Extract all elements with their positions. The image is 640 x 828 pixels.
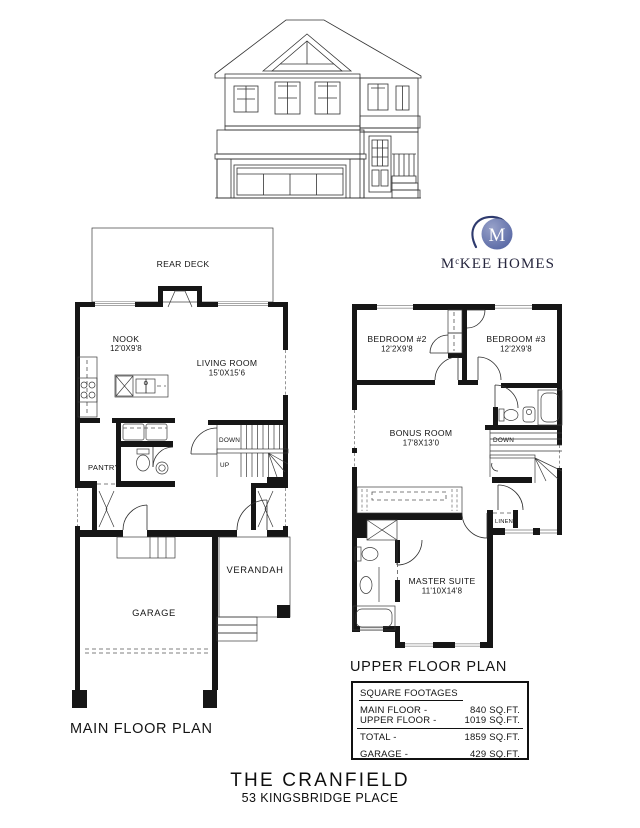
porch-railing [392,154,416,176]
main-floor-plan-title: MAIN FLOOR PLAN [70,721,213,737]
main-stairs [191,425,288,477]
main-bath-fixtures [495,385,562,425]
main-floor-walls [72,286,288,708]
garage-door-dashes [85,649,208,653]
house-elevation-drawing [212,8,426,200]
room-dims-bedroom2: 12'2X9'8 [381,345,413,354]
elevation-upper-storey [225,74,418,132]
closet-label-linen: LINEN [495,519,513,525]
kitchen-fixtures [78,357,168,417]
room-dims-bonus: 17'8X13'0 [403,439,440,448]
row-value: 1019 SQ.FT. [464,716,520,726]
floor-plan-flyer: M McKEE HOMES [0,0,640,828]
upper-floor-plan-title: UPPER FLOOR PLAN [350,659,507,675]
room-dims-bedroom3: 12'2X9'8 [500,345,532,354]
room-label-pantry: PANTRY [88,463,120,472]
room-label-bedroom3: BEDROOM #3 [486,334,545,344]
ensuite-fixtures [353,547,398,630]
room-label-living: LIVING ROOM [197,358,258,368]
plan-title-block: THE CRANFIELD 53 KINGSBRIDGE PLACE [0,772,640,805]
bedroom-doors [435,357,501,380]
elevation-skirt-roof [215,116,420,159]
square-footages-table: SQUARE FOOTAGES MAIN FLOOR - 840 SQ.FT. … [351,681,529,760]
builder-logo: M McKEE HOMES [436,210,560,273]
room-dims-nook: 12'0X9'8 [110,344,142,353]
room-label-bedroom2: BEDROOM #2 [367,334,426,344]
walk-in-closet [367,520,422,565]
room-label-rear-deck: REAR DECK [157,259,210,269]
row-label: TOTAL - [360,733,397,743]
row-value: 429 SQ.FT. [470,750,520,760]
row-label: GARAGE - [360,750,408,760]
row-value: 1859 SQ.FT. [464,733,520,743]
plan-address: 53 KINGSBRIDGE PLACE [0,791,640,805]
logo-monogram-icon: M [436,210,560,256]
elevation-garage-storey [215,132,421,198]
builder-name: McKEE HOMES [436,256,560,273]
front-stoop [117,537,175,558]
table-row-garage: GARAGE - 429 SQ.FT. [360,750,520,760]
square-footages-title: SQUARE FOOTAGES [360,688,520,699]
room-label-verandah: VERANDAH [227,564,284,575]
stair-label-up: UP [220,462,229,469]
room-label-garage: GARAGE [132,607,176,618]
plan-name: THE CRANFIELD [0,772,640,789]
logo-monogram-letter: M [489,225,506,246]
upper-floor-walls [352,304,562,648]
elevation-roof [215,20,421,78]
closet-bifold-doors [99,491,273,527]
stair-label-down: DOWN [219,437,240,444]
verandah-outline [217,537,290,641]
entry-doors [123,500,267,530]
upper-floor-plan-drawing: BEDROOM #2 12'2X9'8 BEDROOM #3 12'2X9'8 … [340,295,585,680]
powder-room-fixtures [137,447,174,474]
stair-label-down-upper: DOWN [493,437,514,444]
room-label-bonus: BONUS ROOM [390,428,453,438]
row-label: UPPER FLOOR - [360,716,437,726]
main-floor-plan-drawing: REAR DECK NOOK 12'0X9'8 LIVING ROOM 15'0… [55,220,300,740]
table-row-total: TOTAL - 1859 SQ.FT. [360,733,520,743]
bedroom-closets [430,310,485,353]
window-seat [357,487,462,513]
main-floor-windows [75,302,288,526]
room-dims-master: 11'10X14'8 [422,587,463,596]
laundry-appliances [123,424,167,440]
table-separator [357,728,523,729]
table-row-upper-floor: UPPER FLOOR - 1019 SQ.FT. [360,716,520,726]
title-underline [359,700,463,701]
fireplace [168,291,192,307]
room-label-master: MASTER SUITE [408,576,475,586]
room-dims-living: 15'0X15'6 [209,369,246,378]
room-label-nook: NOOK [113,334,140,344]
